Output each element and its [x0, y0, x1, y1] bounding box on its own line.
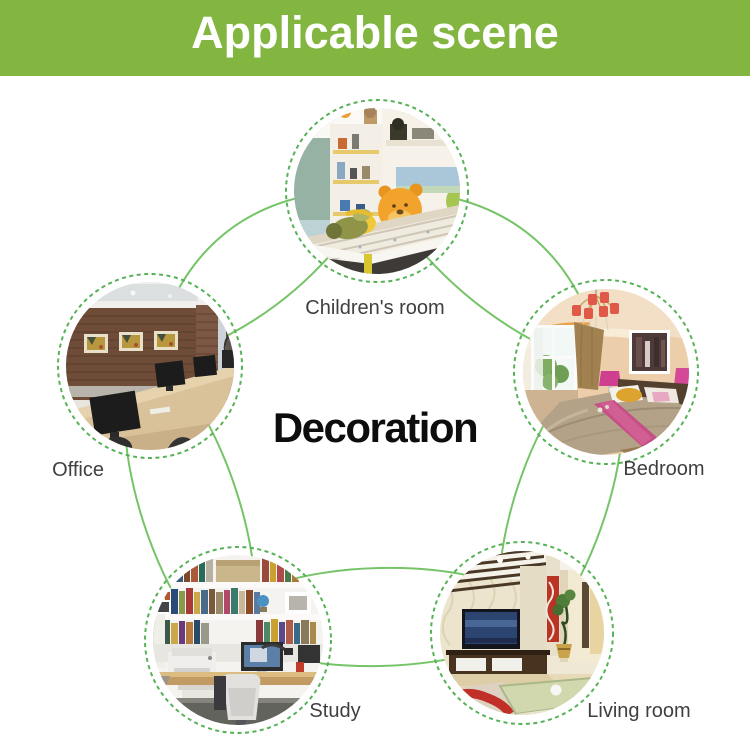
svg-text:Office: Office [52, 459, 104, 481]
svg-text:Study: Study [309, 700, 360, 722]
svg-text:Decoration: Decoration [273, 404, 477, 451]
svg-text:Living room: Living room [587, 700, 690, 722]
svg-text:Bedroom: Bedroom [623, 458, 704, 480]
svg-text:Children's room: Children's room [305, 297, 444, 319]
